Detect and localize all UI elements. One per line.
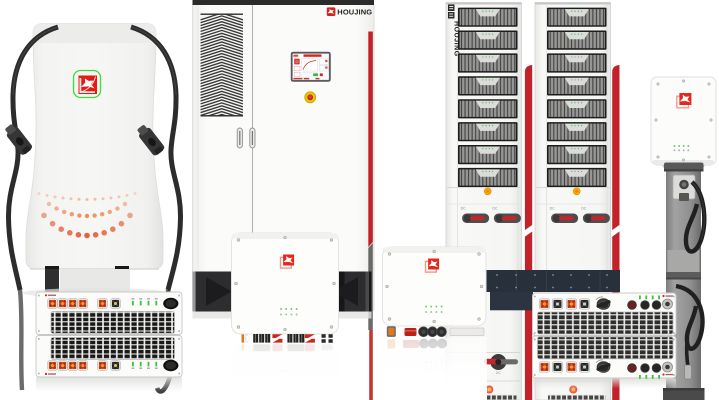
svg-text:DC: DC (581, 207, 587, 211)
svg-text:DC: DC (492, 207, 498, 211)
svg-text:HOUJING: HOUJING (337, 7, 372, 16)
svg-text:DC: DC (550, 207, 556, 211)
svg-text:DC: DC (461, 207, 467, 211)
svg-text:DC: DC (496, 371, 501, 375)
